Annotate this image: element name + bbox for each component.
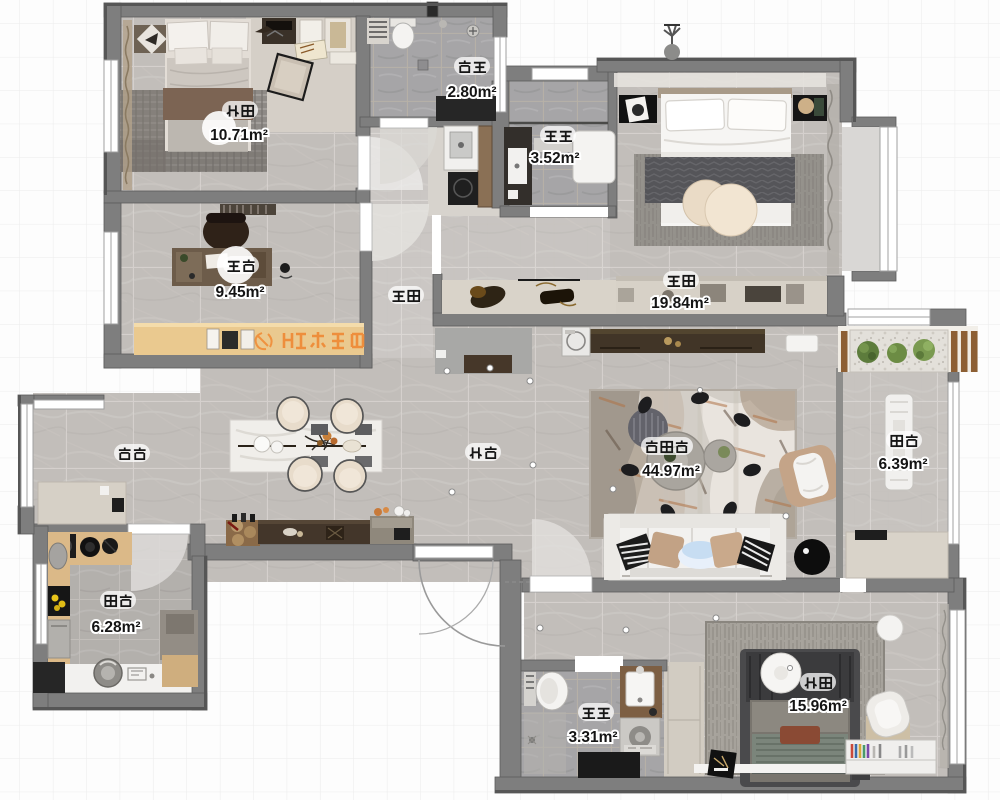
svg-text:19.84m²: 19.84m² — [651, 295, 709, 312]
svg-text:6.39m²: 6.39m² — [878, 456, 927, 473]
svg-text:2.80m²: 2.80m² — [447, 84, 496, 101]
svg-text:9.45m²: 9.45m² — [215, 284, 264, 301]
svg-text:3.52m²: 3.52m² — [530, 150, 579, 167]
svg-text:10.71m²: 10.71m² — [210, 127, 268, 144]
svg-text:6.28m²: 6.28m² — [91, 619, 140, 636]
svg-text:3.31m²: 3.31m² — [568, 729, 617, 746]
svg-text:44.97m²: 44.97m² — [642, 463, 700, 480]
svg-text:15.96m²: 15.96m² — [789, 698, 847, 715]
